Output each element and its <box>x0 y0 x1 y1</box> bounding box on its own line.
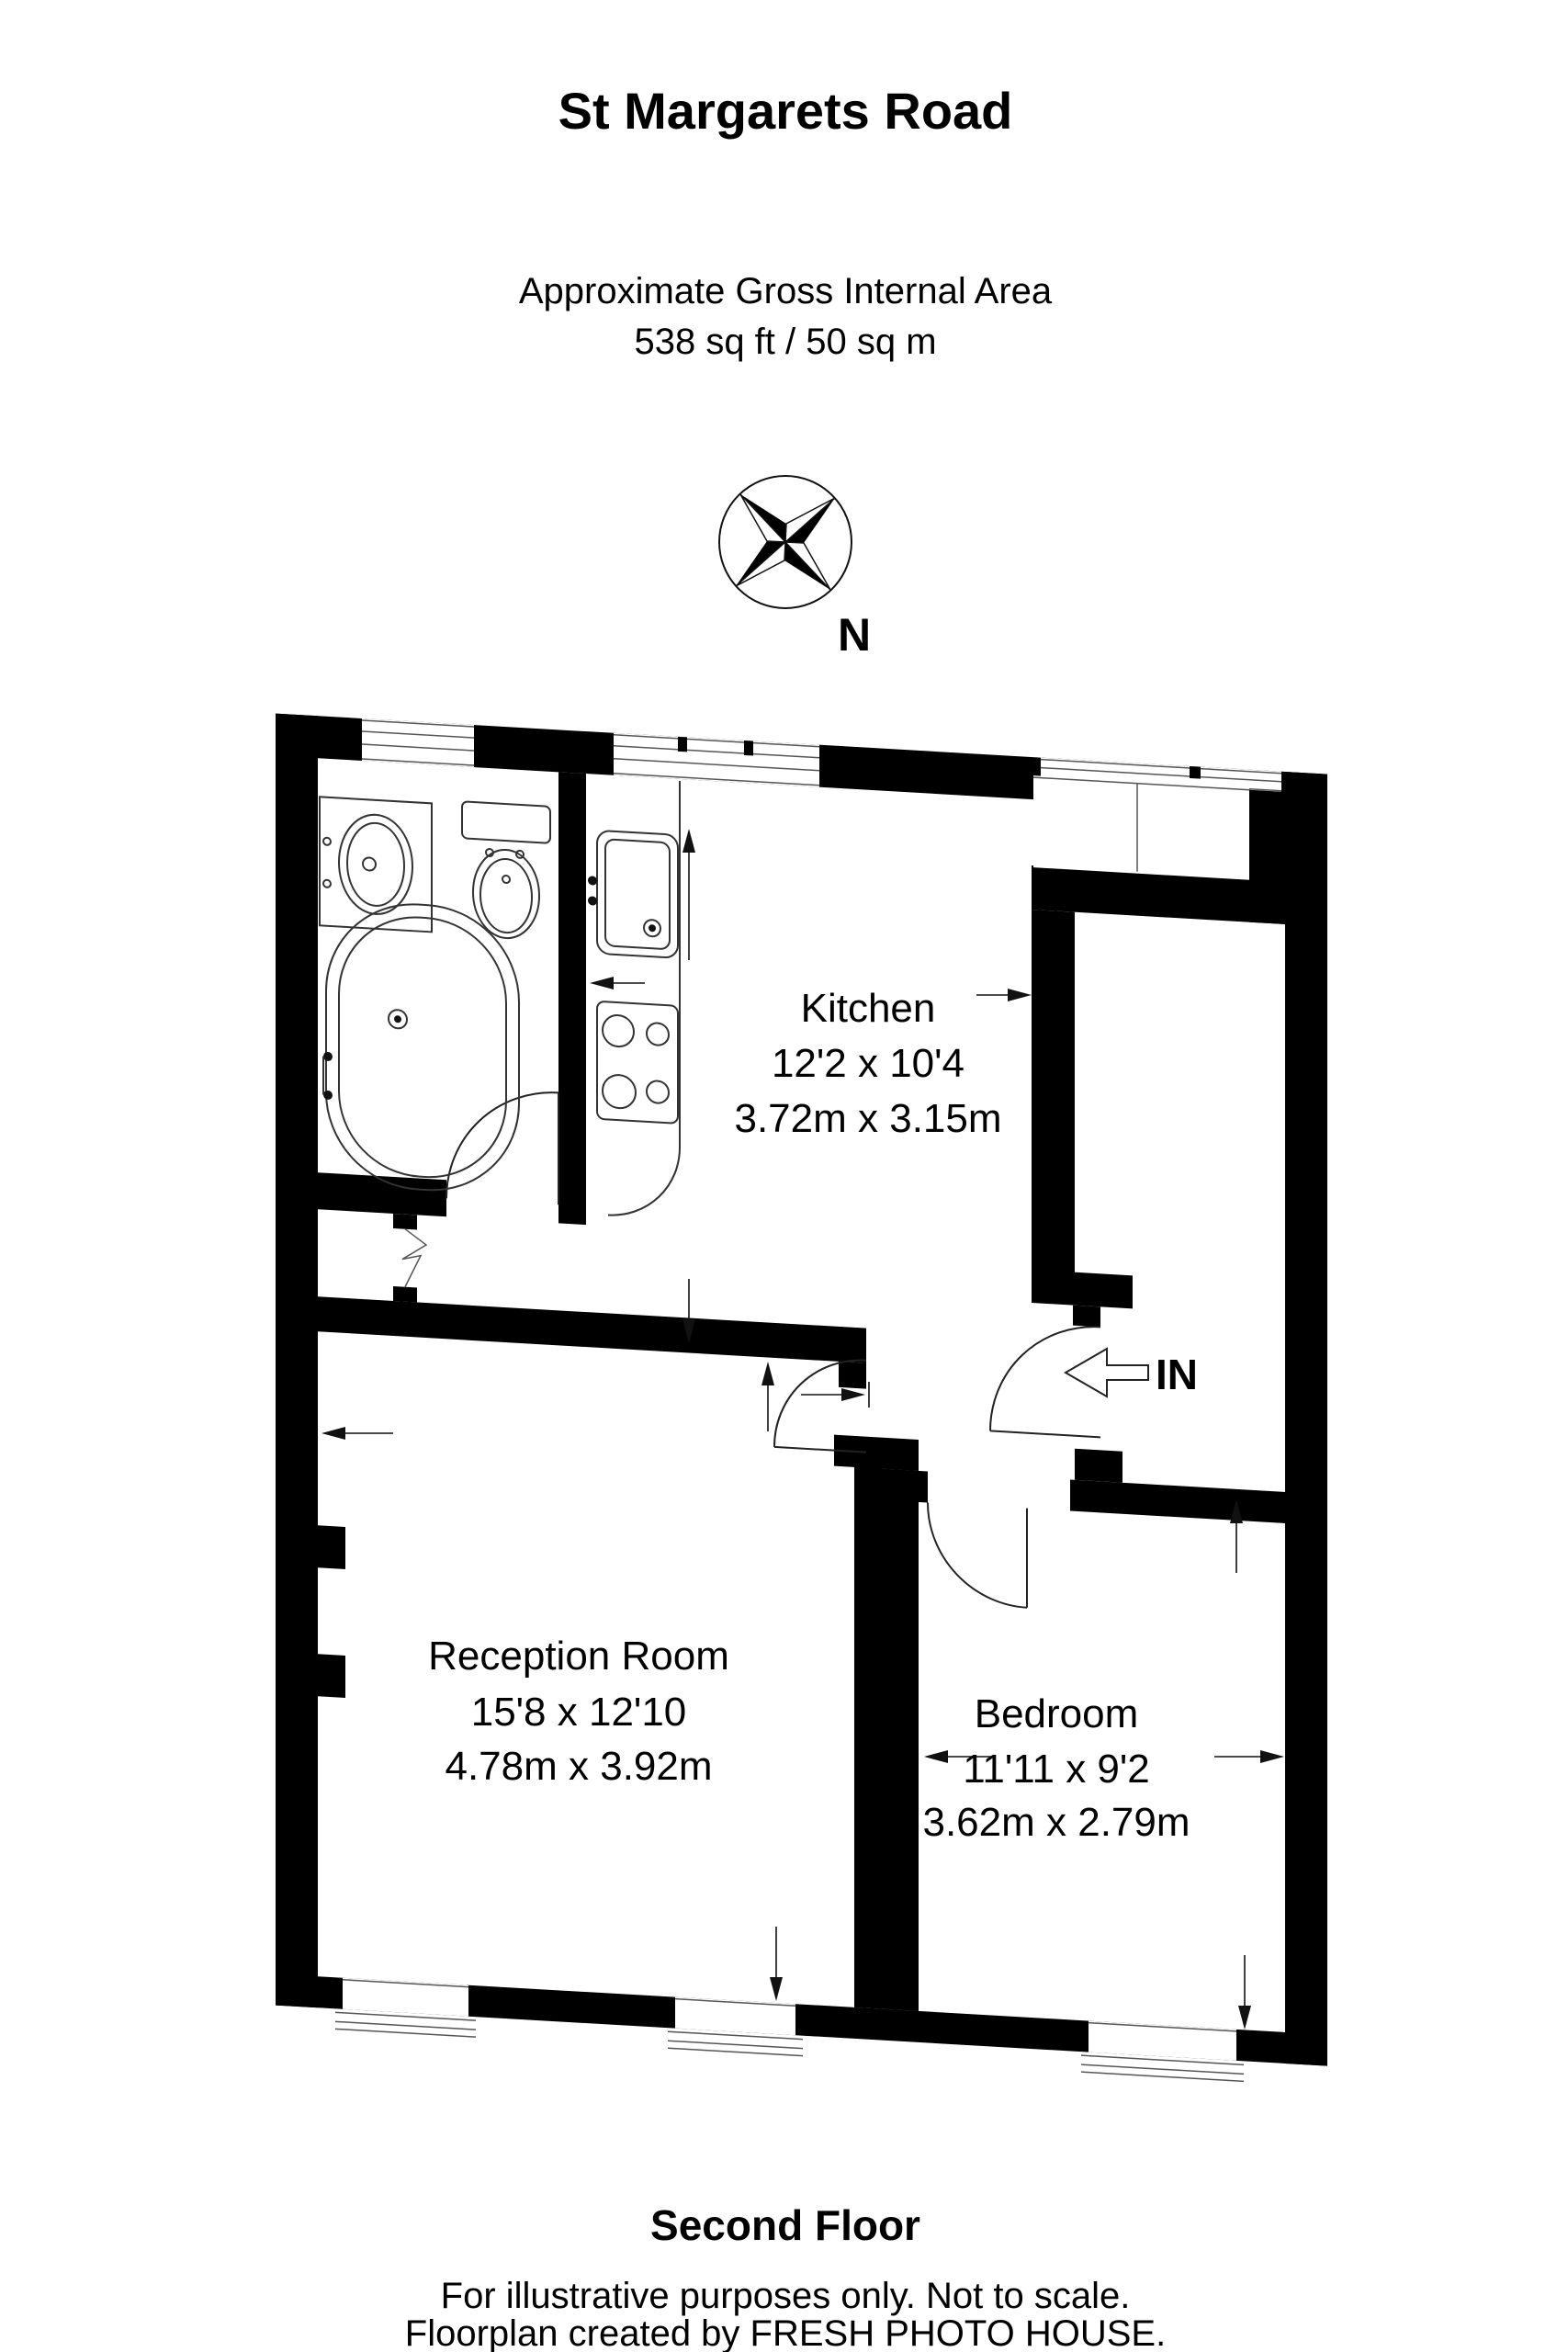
room-metric: 3.72m x 3.15m <box>734 1096 1001 1141</box>
bedroom-door <box>928 1503 1027 1608</box>
room-metric: 4.78m x 3.92m <box>445 1744 712 1789</box>
toilet <box>462 801 550 941</box>
footer-block: Second Floor For illustrative purposes o… <box>405 2201 1166 2352</box>
opening-symbol <box>402 1229 426 1288</box>
entrance-marker: IN <box>1066 1349 1198 1398</box>
in-arrow-icon <box>1066 1349 1148 1396</box>
room-label-reception: Reception Room 15'8 x 12'10 4.78m x 3.92… <box>428 1634 729 1789</box>
header-block: St Margarets Road Approximate Gross Inte… <box>519 82 1053 362</box>
room-imperial: 12'2 x 10'4 <box>772 1041 964 1086</box>
compass: N <box>719 476 871 661</box>
area-subtitle: Approximate Gross Internal Area <box>519 271 1053 311</box>
room-label-bedroom: Bedroom 11'11 x 9'2 3.62m x 2.79m <box>922 1691 1190 1845</box>
room-label-kitchen: Kitchen 12'2 x 10'4 3.72m x 3.15m <box>734 986 1001 1141</box>
page-title: St Margarets Road <box>558 82 1013 140</box>
room-name: Reception Room <box>428 1634 729 1679</box>
floorplan-plan <box>276 714 1327 2086</box>
recess-cupboard <box>1033 775 1249 880</box>
area-value: 538 sq ft / 50 sq m <box>634 322 936 362</box>
hob <box>597 1001 678 1124</box>
floorplan-image: IN N St Margarets Road Approximate Gross… <box>0 0 1568 2352</box>
disclaimer-line1: For illustrative purposes only. Not to s… <box>441 2276 1131 2316</box>
bathtub <box>323 899 519 1195</box>
room-name: Kitchen <box>801 986 936 1031</box>
compass-north-label: N <box>838 609 871 661</box>
kitchen-counter <box>608 776 680 1218</box>
bathroom-door <box>446 1086 558 1204</box>
kitchen-sink <box>588 830 678 958</box>
room-imperial: 15'8 x 12'10 <box>471 1690 687 1735</box>
disclaimer-line2: Floorplan created by FRESH PHOTO HOUSE. <box>405 2313 1166 2352</box>
room-name: Bedroom <box>975 1691 1139 1736</box>
room-metric: 3.62m x 2.79m <box>922 1800 1190 1845</box>
entrance-label: IN <box>1156 1351 1198 1398</box>
floor-label: Second Floor <box>650 2201 920 2249</box>
room-imperial: 11'11 x 9'2 <box>963 1747 1150 1792</box>
